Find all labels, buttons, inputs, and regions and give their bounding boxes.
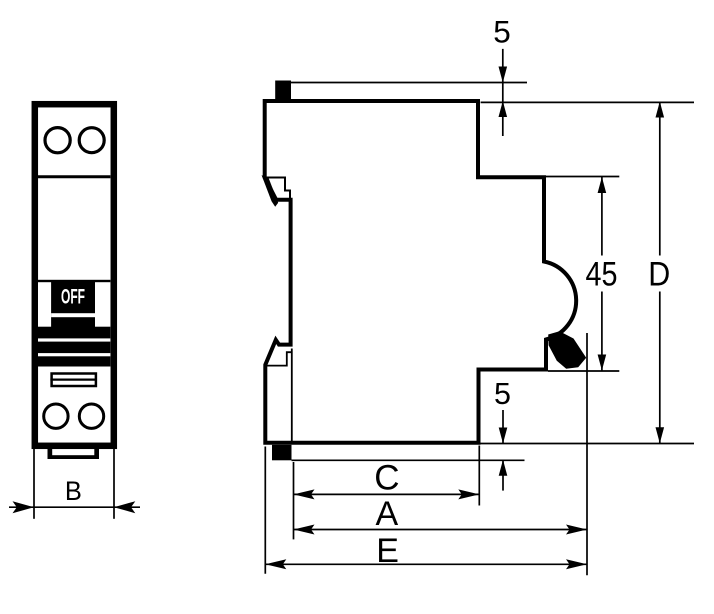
svg-text:A: A	[376, 495, 399, 533]
svg-text:B: B	[65, 476, 82, 506]
svg-text:45: 45	[586, 256, 618, 294]
svg-text:C: C	[374, 459, 399, 498]
svg-text:5: 5	[494, 377, 511, 411]
svg-text:5: 5	[493, 14, 511, 50]
svg-text:E: E	[376, 532, 399, 570]
svg-text:OFF: OFF	[61, 285, 85, 308]
svg-text:D: D	[648, 256, 670, 294]
